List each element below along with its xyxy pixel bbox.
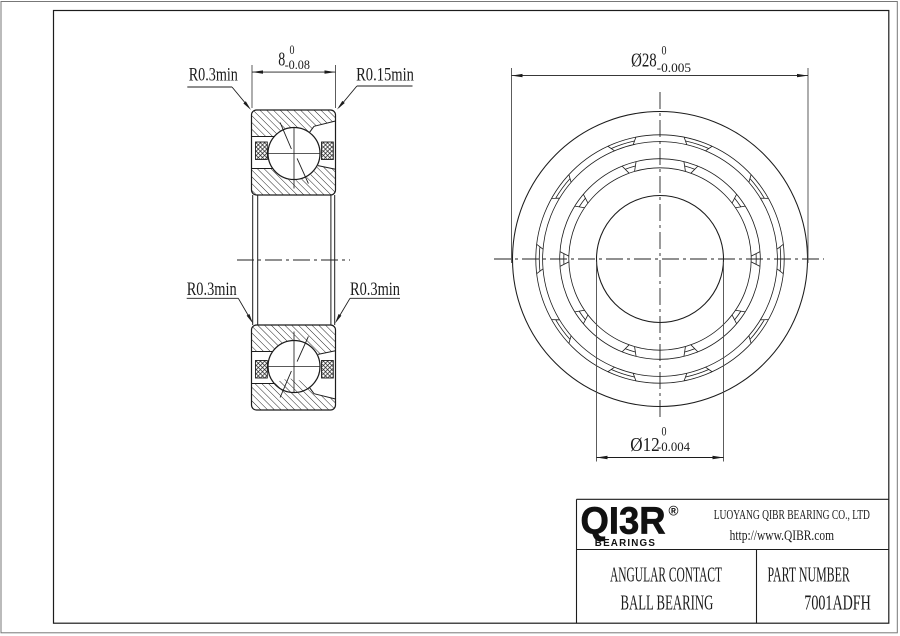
svg-text:-0.08: -0.08 — [285, 58, 310, 72]
svg-text:PART NUMBER: PART NUMBER — [768, 563, 850, 587]
svg-text:7001ADFH: 7001ADFH — [804, 591, 871, 615]
svg-text:http://www.QIBR.com: http://www.QIBR.com — [730, 528, 835, 544]
svg-text:0: 0 — [290, 43, 295, 57]
svg-text:LUOYANG QIBR BEARING CO., LTD: LUOYANG QIBR BEARING CO., LTD — [714, 508, 870, 523]
svg-text:BEARINGS: BEARINGS — [595, 538, 656, 549]
svg-text:0: 0 — [662, 44, 667, 58]
svg-text:Ø28: Ø28 — [631, 49, 657, 71]
svg-text:BALL BEARING: BALL BEARING — [621, 591, 714, 615]
svg-text:R0.15min: R0.15min — [356, 65, 414, 86]
svg-text:-0.005: -0.005 — [657, 61, 691, 75]
svg-text:ANGULAR CONTACT: ANGULAR CONTACT — [610, 563, 722, 587]
svg-text:QI3R: QI3R — [581, 501, 666, 543]
svg-text:Ø12: Ø12 — [630, 434, 659, 456]
svg-text:-0.004: -0.004 — [657, 440, 691, 454]
svg-text:R0.3min: R0.3min — [189, 65, 239, 86]
svg-text:R0.3min: R0.3min — [350, 279, 400, 300]
svg-text:®: ® — [669, 504, 679, 519]
svg-text:R0.3min: R0.3min — [187, 279, 237, 300]
svg-text:0: 0 — [662, 425, 667, 439]
